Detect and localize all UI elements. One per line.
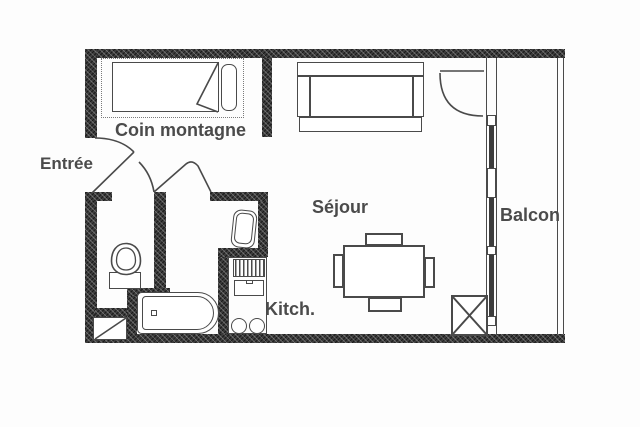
plan-line-overlay [0,0,640,427]
balcony-door-arc [440,73,483,116]
bed-blanket-fold [197,63,218,112]
closet-diagonal [95,318,126,339]
wc-door-arc [139,162,154,192]
bathroom-door-swing [154,162,211,192]
service-shaft-cross [452,296,487,335]
entrance-door-arc [95,138,134,152]
entrance-door-leaf [92,152,134,193]
floor-plan: Entrée Coin montagne Séjour Kitch. Balco… [0,0,640,427]
